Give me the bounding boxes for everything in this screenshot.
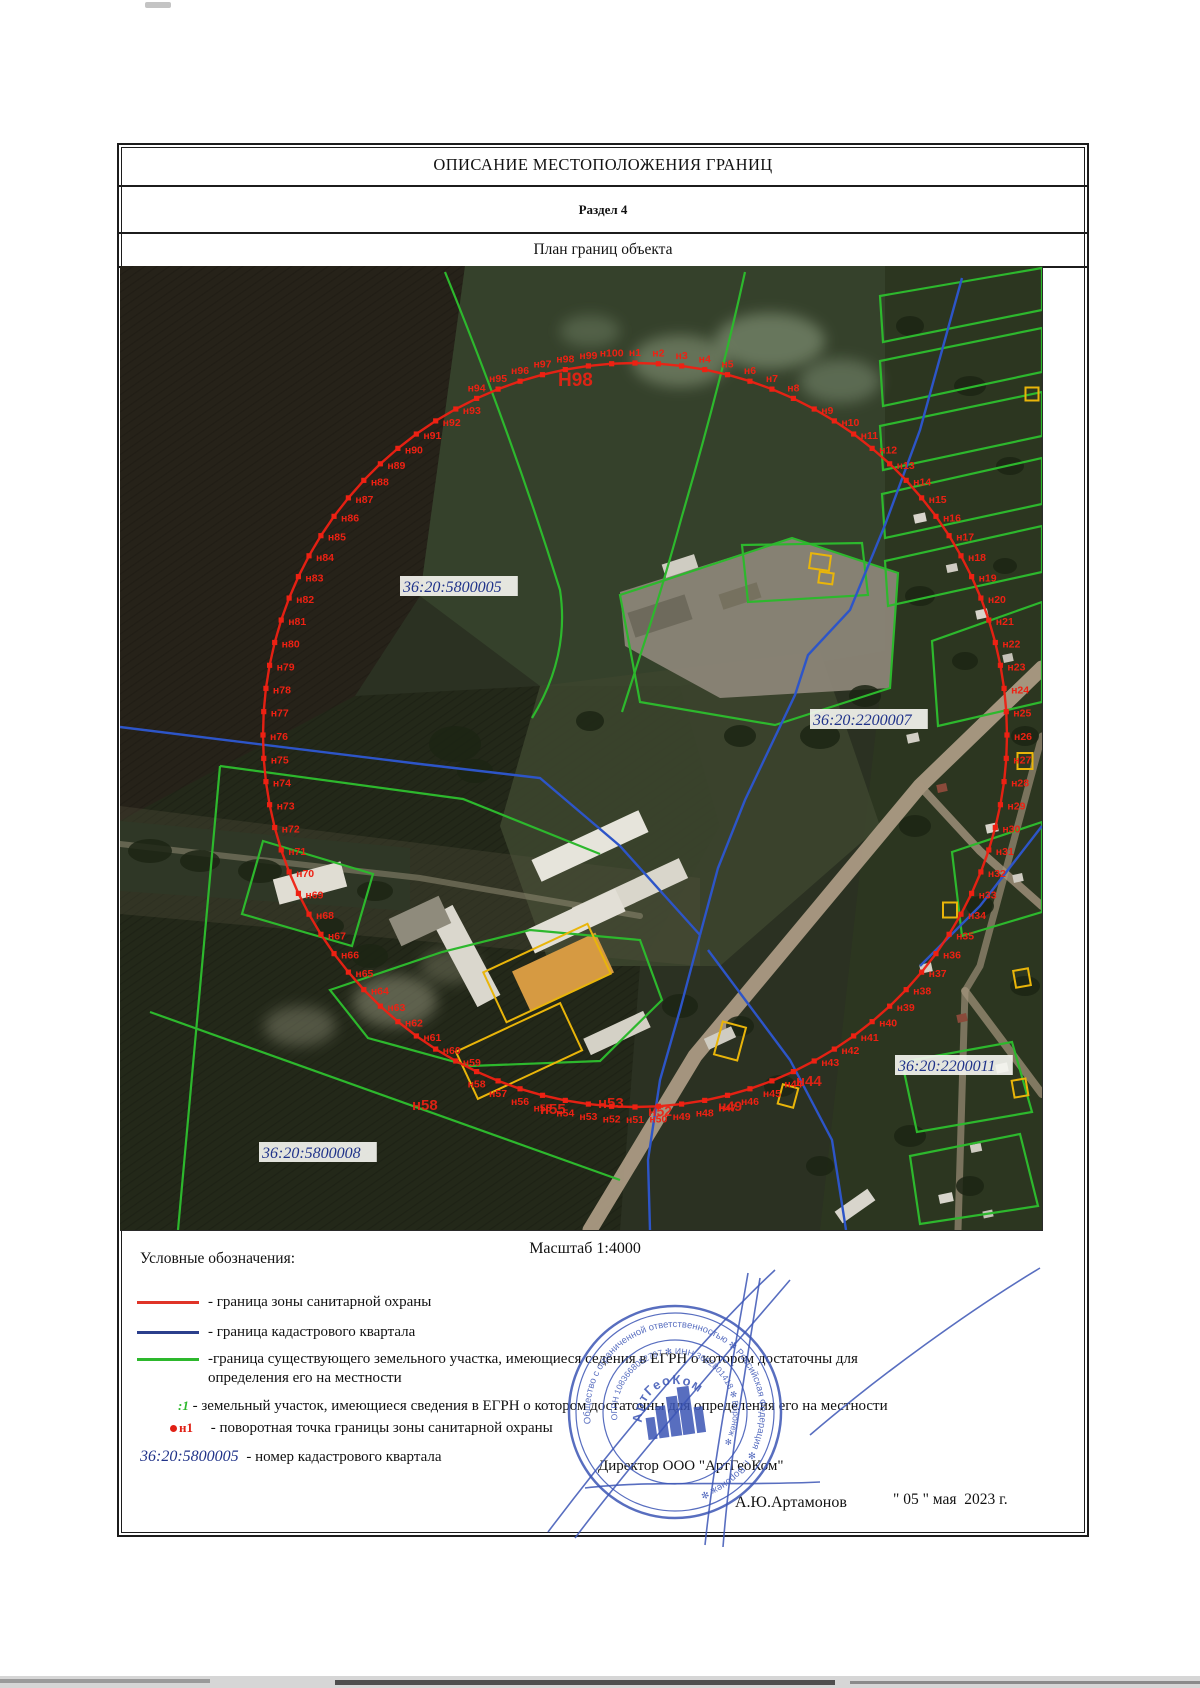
zone-point-marker bbox=[725, 372, 730, 377]
zone-point-marker bbox=[870, 446, 875, 451]
zone-point-label: н96 bbox=[511, 365, 529, 377]
tree-clump bbox=[956, 1176, 984, 1196]
zone-point-marker bbox=[263, 686, 268, 691]
zone-point-label: н6 bbox=[744, 365, 756, 377]
zone-point-marker bbox=[361, 987, 366, 992]
legend-line-swatch bbox=[137, 1331, 199, 1334]
zone-point-label: н61 bbox=[423, 1032, 441, 1044]
zone-point-label: н43 bbox=[821, 1057, 839, 1069]
tree-clump bbox=[429, 726, 481, 762]
zone-point-label: н37 bbox=[929, 968, 947, 980]
tree-clump bbox=[894, 1125, 926, 1147]
zone-point-label: н46 bbox=[741, 1096, 759, 1108]
zone-point-label: н8 bbox=[787, 382, 799, 394]
zone-point-marker bbox=[453, 406, 458, 411]
zone-point-marker bbox=[331, 514, 336, 519]
zone-point-marker bbox=[904, 478, 909, 483]
zone-point-label: н88 bbox=[371, 476, 389, 488]
zone-point-marker bbox=[517, 1086, 522, 1091]
zone-point-marker bbox=[433, 418, 438, 423]
tree-clump bbox=[806, 1156, 834, 1176]
zone-point-marker bbox=[331, 951, 336, 956]
legend-item-0: - граница зоны санитарной охраны bbox=[137, 1293, 431, 1312]
zone-point-label: н79 bbox=[277, 661, 295, 673]
zone-point-label: н58 bbox=[468, 1079, 486, 1091]
zone-point-label: н34 bbox=[968, 910, 986, 922]
plan-map: 36:20:580000536:20:220000736:20:22000113… bbox=[120, 266, 1043, 1231]
zone-point-label: н71 bbox=[288, 846, 306, 858]
zone-point-marker bbox=[904, 987, 909, 992]
zone-point-label: н66 bbox=[341, 950, 359, 962]
zone-point-label: н12 bbox=[879, 444, 897, 456]
strip-segment bbox=[335, 1680, 835, 1685]
zone-point-label: н24 bbox=[1011, 684, 1029, 696]
zone-point-marker bbox=[656, 361, 661, 366]
section-title: Раздел 4 bbox=[119, 187, 1087, 234]
zone-point-marker bbox=[517, 379, 522, 384]
zone-point-marker bbox=[747, 1086, 752, 1091]
zone-point-marker bbox=[1001, 686, 1006, 691]
zone-point-label: н89 bbox=[387, 460, 405, 472]
zone-point-label: н51 bbox=[626, 1114, 644, 1126]
zone-point-label: н90 bbox=[405, 444, 423, 456]
zone-point-label: н67 bbox=[328, 930, 346, 942]
zone-point-marker bbox=[851, 431, 856, 436]
tree-clump bbox=[180, 850, 220, 872]
zone-point-marker bbox=[1004, 756, 1009, 761]
zone-point-marker bbox=[919, 970, 924, 975]
zone-point-label: н15 bbox=[929, 494, 947, 506]
zone-point-label-large: н55 bbox=[540, 1101, 566, 1118]
zone-point-label: н28 bbox=[1011, 778, 1029, 790]
zone-point-marker bbox=[870, 1019, 875, 1024]
zone-point-label: н70 bbox=[296, 868, 314, 880]
zone-point-marker bbox=[679, 363, 684, 368]
zone-point-label: н42 bbox=[841, 1045, 859, 1057]
zone-point-marker bbox=[296, 891, 301, 896]
zone-point-label: н45 bbox=[763, 1088, 781, 1100]
zone-point-marker bbox=[272, 640, 277, 645]
zone-point-label: н21 bbox=[996, 616, 1014, 628]
cadastral-quarter-label: 36:20:5800008 bbox=[261, 1145, 361, 1162]
zone-point-label: н83 bbox=[305, 573, 323, 585]
zone-point-label: н18 bbox=[968, 552, 986, 564]
zone-point-marker bbox=[1001, 779, 1006, 784]
zone-point-marker bbox=[933, 951, 938, 956]
zone-point-label: н4 bbox=[699, 354, 711, 366]
zone-point-label: н25 bbox=[1013, 708, 1031, 720]
zone-point-label: н95 bbox=[489, 373, 507, 385]
parcel-symbol: :1 bbox=[178, 1398, 189, 1413]
zone-point-marker bbox=[958, 553, 963, 558]
zone-point-marker bbox=[747, 379, 752, 384]
zone-point-label: н38 bbox=[913, 986, 931, 998]
zone-point-label-large: н58 bbox=[412, 1097, 438, 1114]
zone-point-label: н57 bbox=[489, 1088, 507, 1100]
zone-point-marker bbox=[260, 732, 265, 737]
scan-artifact bbox=[145, 2, 171, 8]
zone-point-marker bbox=[318, 932, 323, 937]
zone-point-marker bbox=[433, 1046, 438, 1051]
zone-point-marker bbox=[702, 1098, 707, 1103]
zone-point-marker bbox=[474, 396, 479, 401]
zone-point-marker bbox=[769, 387, 774, 392]
zone-point-label: н73 bbox=[277, 801, 295, 813]
zone-point-label: н30 bbox=[1002, 824, 1020, 836]
zone-point-marker bbox=[267, 663, 272, 668]
document-page: ОПИСАНИЕ МЕСТОПОЛОЖЕНИЯ ГРАНИЦ Раздел 4 … bbox=[0, 0, 1200, 1688]
zone-point-marker bbox=[978, 595, 983, 600]
zone-point-marker bbox=[378, 461, 383, 466]
zone-point-label: н78 bbox=[273, 684, 291, 696]
zone-point-label: н16 bbox=[943, 512, 961, 524]
zone-point-label: н13 bbox=[897, 460, 915, 472]
zone-point-label-large: н53 bbox=[598, 1095, 624, 1112]
satellite-map: 36:20:580000536:20:220000736:20:22000113… bbox=[120, 266, 1042, 1230]
zone-point-marker bbox=[261, 709, 266, 714]
zone-point-label: н92 bbox=[443, 417, 461, 429]
plan-subtitle: План границ объекта bbox=[119, 234, 1087, 268]
zone-point-marker bbox=[812, 406, 817, 411]
zone-point-marker bbox=[346, 495, 351, 500]
cadastral-quarter-label: 36:20:2200011 bbox=[897, 1058, 995, 1075]
zone-point-label: н31 bbox=[996, 846, 1014, 858]
zone-point-marker bbox=[453, 1058, 458, 1063]
zone-point-marker bbox=[1004, 709, 1009, 714]
zone-point-marker bbox=[769, 1078, 774, 1083]
zone-point-label: н19 bbox=[979, 573, 997, 585]
legend-line-swatch bbox=[137, 1358, 199, 1361]
zone-point-marker bbox=[632, 360, 637, 365]
zone-point-marker bbox=[318, 533, 323, 538]
zone-point-label: н62 bbox=[405, 1018, 423, 1030]
zone-point-label: н49 bbox=[673, 1111, 691, 1123]
zone-point-label-large: н49 bbox=[718, 1098, 742, 1114]
zone-point-marker bbox=[933, 514, 938, 519]
zone-point-label: н14 bbox=[913, 476, 931, 488]
zone-point-marker bbox=[378, 1004, 383, 1009]
zone-point-marker bbox=[306, 553, 311, 558]
scan-edge-strip bbox=[0, 1676, 1200, 1688]
zone-point-label: н29 bbox=[1007, 801, 1025, 813]
zone-point-label-large: н52 bbox=[648, 1103, 672, 1119]
zone-point-label: н1 bbox=[629, 347, 641, 359]
zone-point-label: н59 bbox=[463, 1057, 481, 1069]
zone-point-label: н56 bbox=[511, 1096, 529, 1108]
strip-segment bbox=[0, 1679, 210, 1683]
zone-point-marker bbox=[272, 825, 277, 830]
quarter-number: 36:20:5800005 bbox=[140, 1448, 239, 1465]
zone-point-label: н91 bbox=[423, 430, 441, 442]
zone-point-label: н75 bbox=[271, 754, 289, 766]
tree-clump bbox=[576, 711, 604, 731]
zone-point-label: н2 bbox=[652, 348, 664, 360]
terrain-patch bbox=[560, 315, 620, 347]
zone-point-marker bbox=[540, 372, 545, 377]
terrain-patch bbox=[800, 359, 880, 403]
zone-point-label: н52 bbox=[603, 1113, 621, 1125]
zone-point-marker bbox=[287, 595, 292, 600]
zone-point-marker bbox=[978, 869, 983, 874]
zone-point-label: н26 bbox=[1014, 731, 1032, 743]
zone-point-label: н84 bbox=[316, 552, 334, 564]
tree-clump bbox=[993, 558, 1017, 574]
zone-point-label: н48 bbox=[696, 1107, 714, 1119]
zone-point-label: н7 bbox=[766, 373, 778, 385]
zone-point-label: н11 bbox=[861, 430, 879, 442]
zone-point-marker bbox=[395, 1019, 400, 1024]
zone-point-label: н98 bbox=[556, 354, 574, 366]
zone-point-marker bbox=[946, 533, 951, 538]
zone-point-marker bbox=[586, 363, 591, 368]
zone-point-marker bbox=[609, 361, 614, 366]
tree-clump bbox=[952, 652, 978, 670]
zone-point-label: н53 bbox=[579, 1111, 597, 1123]
cadastral-quarter-label: 36:20:5800005 bbox=[402, 579, 502, 596]
zone-point-label: н9 bbox=[821, 405, 833, 417]
legend-item-label: - граница кадастрового квартала bbox=[208, 1323, 415, 1342]
legend-quarter-item: 36:20:5800005 - номер кадастрового кварт… bbox=[140, 1448, 442, 1466]
zone-point-marker bbox=[993, 640, 998, 645]
zone-point-label: н74 bbox=[273, 778, 291, 790]
zone-point-label: н20 bbox=[988, 594, 1006, 606]
zone-point-marker bbox=[679, 1101, 684, 1106]
zone-point-marker bbox=[832, 1046, 837, 1051]
zone-point-marker bbox=[969, 891, 974, 896]
tree-clump bbox=[899, 815, 931, 837]
terrain-patch bbox=[264, 1006, 336, 1046]
zone-point-label: н85 bbox=[328, 532, 346, 544]
handwritten-signature bbox=[480, 1240, 1120, 1570]
zone-point-marker bbox=[969, 574, 974, 579]
zone-point-label: н5 bbox=[721, 359, 733, 371]
quarter-label: - номер кадастрового квартала bbox=[246, 1449, 441, 1465]
zone-point-label: н87 bbox=[355, 494, 373, 506]
zone-point-marker bbox=[267, 802, 272, 807]
zone-point-label: н100 bbox=[600, 348, 624, 360]
zone-point-marker bbox=[791, 396, 796, 401]
zone-point-label: н94 bbox=[468, 382, 486, 394]
zone-point-label: н27 bbox=[1013, 754, 1031, 766]
zone-point-marker bbox=[887, 461, 892, 466]
zone-point-marker bbox=[279, 617, 284, 622]
zone-point-marker bbox=[1004, 732, 1009, 737]
zone-point-marker bbox=[998, 663, 1003, 668]
tree-clump bbox=[724, 725, 756, 747]
zone-point-label: н23 bbox=[1007, 661, 1025, 673]
zone-point-label: н17 bbox=[956, 532, 974, 544]
zone-point-marker bbox=[263, 779, 268, 784]
zone-point-label: н40 bbox=[879, 1018, 897, 1030]
zone-point-marker bbox=[832, 418, 837, 423]
zone-point-marker bbox=[851, 1033, 856, 1038]
cadastral-quarter-label: 36:20:2200007 bbox=[812, 712, 913, 729]
zone-point-marker bbox=[887, 1004, 892, 1009]
zone-point-marker bbox=[993, 825, 998, 830]
zone-point-marker bbox=[702, 367, 707, 372]
zone-point-marker bbox=[414, 431, 419, 436]
zone-point-label: н93 bbox=[463, 405, 481, 417]
zone-point-label: н82 bbox=[296, 594, 314, 606]
zone-point-label: н22 bbox=[1002, 638, 1020, 650]
legend-heading: Условные обозначения: bbox=[140, 1250, 295, 1268]
zone-point-marker bbox=[495, 1078, 500, 1083]
zone-point-label: н32 bbox=[988, 868, 1006, 880]
zone-point-label: н35 bbox=[956, 930, 974, 942]
zone-point-label: н72 bbox=[282, 824, 300, 836]
zone-point-label-large: н44 bbox=[796, 1073, 822, 1090]
zone-point-marker bbox=[986, 847, 991, 852]
zone-point-label: н33 bbox=[979, 889, 997, 901]
point-symbol: н1 bbox=[179, 1420, 193, 1435]
legend-item-label: - граница зоны санитарной охраны bbox=[208, 1293, 431, 1312]
zone-point-marker bbox=[958, 912, 963, 917]
zone-point-label: н80 bbox=[282, 638, 300, 650]
zone-point-label: н86 bbox=[341, 512, 359, 524]
zone-point-label: н60 bbox=[443, 1045, 461, 1057]
zone-point-marker bbox=[946, 932, 951, 937]
tree-clump bbox=[128, 839, 172, 863]
zone-point-label: н69 bbox=[305, 889, 323, 901]
zone-point-marker bbox=[414, 1033, 419, 1038]
tree-clump bbox=[357, 881, 393, 901]
zone-point-marker bbox=[998, 802, 1003, 807]
zone-point-marker bbox=[586, 1101, 591, 1106]
zone-point-marker bbox=[306, 912, 311, 917]
zone-point-marker bbox=[361, 478, 366, 483]
zone-point-marker bbox=[632, 1104, 637, 1109]
zone-point-label: н10 bbox=[841, 417, 859, 429]
zone-point-label: н36 bbox=[943, 950, 961, 962]
zone-point-marker bbox=[287, 869, 292, 874]
zone-point-marker bbox=[279, 847, 284, 852]
zone-point-label: н63 bbox=[387, 1002, 405, 1014]
zone-point-label: н68 bbox=[316, 910, 334, 922]
zone-point-label: н65 bbox=[355, 968, 373, 980]
zone-point-marker bbox=[919, 495, 924, 500]
legend-item-1: - граница кадастрового квартала bbox=[137, 1323, 415, 1342]
zone-point-label: н99 bbox=[579, 350, 597, 362]
zone-point-marker bbox=[540, 1093, 545, 1098]
page-title: ОПИСАНИЕ МЕСТОПОЛОЖЕНИЯ ГРАНИЦ bbox=[119, 145, 1087, 187]
zone-point-label: н3 bbox=[676, 350, 688, 362]
point-dot-icon bbox=[170, 1425, 177, 1432]
zone-point-marker bbox=[495, 387, 500, 392]
zone-point-label: н77 bbox=[271, 708, 289, 720]
zone-point-marker bbox=[986, 617, 991, 622]
zone-point-marker bbox=[261, 756, 266, 761]
zone-point-marker bbox=[812, 1058, 817, 1063]
zone-point-label: н41 bbox=[861, 1032, 879, 1044]
zone-point-label: н64 bbox=[371, 986, 389, 998]
tree-clump bbox=[896, 316, 924, 336]
zone-point-label: н39 bbox=[897, 1002, 915, 1014]
zone-point-marker bbox=[346, 970, 351, 975]
zone-point-label: н81 bbox=[288, 616, 306, 628]
zone-point-marker bbox=[395, 446, 400, 451]
zone-point-label-large: Н98 bbox=[558, 370, 593, 391]
legend-line-swatch bbox=[137, 1301, 199, 1304]
zone-point-label: н76 bbox=[270, 731, 288, 743]
zone-point-label: н97 bbox=[533, 359, 551, 371]
strip-segment bbox=[850, 1681, 1200, 1684]
zone-point-marker bbox=[296, 574, 301, 579]
zone-point-marker bbox=[474, 1069, 479, 1074]
